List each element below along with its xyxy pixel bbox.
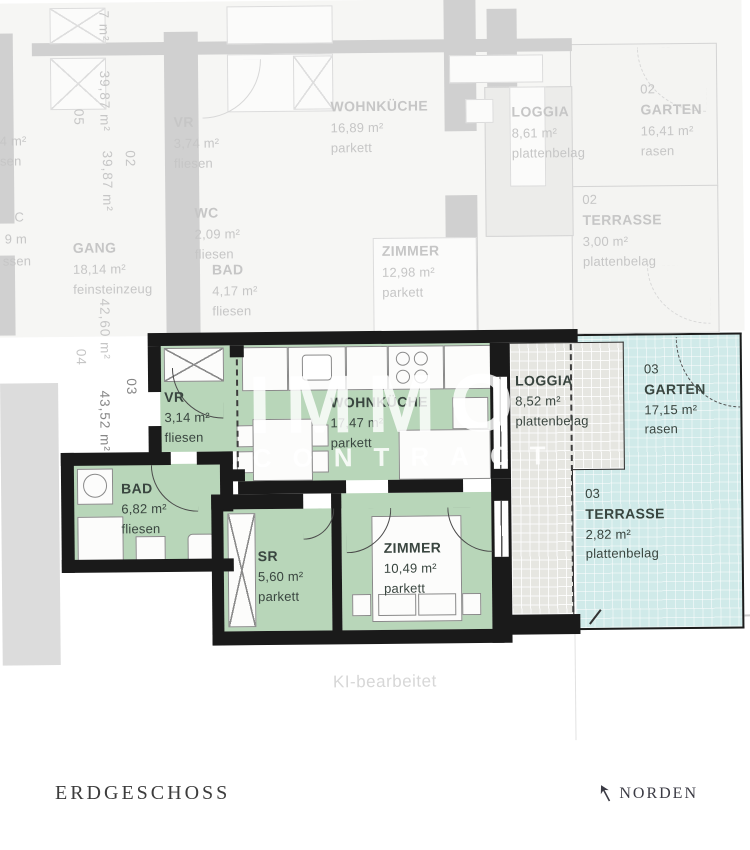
room-label-sr: SR 5,60 m² parkett [258,546,304,606]
faded-dim-05: 39,87 m² [93,70,115,144]
faint-line [574,632,576,740]
room-label-bad: BAD 6,82 m² fliesen [121,478,167,538]
wall [388,479,463,493]
sofa [449,54,543,83]
north-label: NORDEN [619,785,698,803]
wall [61,453,75,573]
wall [211,494,224,644]
watermark-immo: IMMO [248,357,528,454]
north-indicator: NORDEN [598,784,698,803]
wall [238,480,346,494]
faded-room-label-zimmer: ZIMMER 12,98 m² parkett [382,240,440,303]
faded-text-fragment: sen [0,151,22,171]
faded-room-label-wohnkueche: WOHNKÜCHE 16,89 m² parkett [330,95,428,158]
room-label-zimmer: ZIMMER 10,49 m² parkett [384,537,442,598]
faded-room-label-gang: GANG 18,14 m² feinsteinzeug [73,237,153,300]
floorplan-page: VR 3,74 m² fliesen WC 2,09 m² fliesen BA… [0,0,750,850]
wall-nib [230,345,244,357]
wall [0,33,15,223]
north-arrow-icon [595,782,617,806]
wall [148,346,161,392]
unit-number-rotated: 03 [124,378,139,408]
faded-room-label-vr: VR 3,74 m² fliesen [173,111,219,173]
faded-dim-04: 42,60 m² [93,299,115,375]
wall-nib [231,469,245,481]
faded-unit-05: 05 [67,109,88,135]
faded-unit-04: 04 [70,349,91,375]
plan-footer: ERDGESCHOSS NORDEN [0,770,750,850]
wall [62,558,234,573]
faded-dim-02: 39,87 m² [96,150,118,224]
room-label-terrasse: 03 TERRASSE 2,82 m² plattenbelag [585,483,665,563]
wall [212,629,504,646]
faded-room-label-loggia: LOGGIA 8,61 m² plattenbelag [511,101,585,164]
room-label-vr: VR 3,14 m² fliesen [164,387,210,447]
window [494,501,509,557]
wall [211,494,303,510]
wall [61,452,171,466]
wall [502,614,580,635]
faded-room-label-bad: BAD 4,17 m² fliesen [212,259,258,321]
area-loggia-lower [511,468,574,615]
nightstand [462,593,481,615]
floor-level-label: ERDGESCHOSS [55,782,230,805]
shower [77,516,123,562]
faded-text-fragment: 9 m [5,229,27,249]
watermark-contract: CONTRACT [253,440,567,474]
faded-text-fragment: 4 m² [0,131,27,151]
faded-text-fragment: C [14,207,24,227]
faded-room-label-terrasse: 02 TERRASSE 3,00 m² plattenbelag [582,189,662,272]
faded-dim-7m2: 7 m² [92,10,113,56]
faint-line [744,614,750,616]
shaft-cross-icon [293,55,334,109]
faded-room-label-garten: 02 GARTEN 16,41 m² rasen [640,79,702,162]
table [465,99,493,123]
washing-machine-drum-icon [83,474,107,498]
faded-room-label-wc: WC 2,09 m² fliesen [194,202,240,264]
faded-masked-area [0,383,61,666]
watermark-ki-note: KI-bearbeitet [333,671,437,692]
nightstand [352,594,371,616]
faded-unit-02: 02 [119,150,140,176]
wall [164,32,201,334]
faded-text-fragment: ssen [3,251,31,271]
kitchen-counter [226,5,332,44]
room-label-garten: 03 GARTEN 17,15 m² rasen [644,359,706,439]
floorplan-drawing: VR 3,74 m² fliesen WC 2,09 m² fliesen BA… [0,0,750,754]
